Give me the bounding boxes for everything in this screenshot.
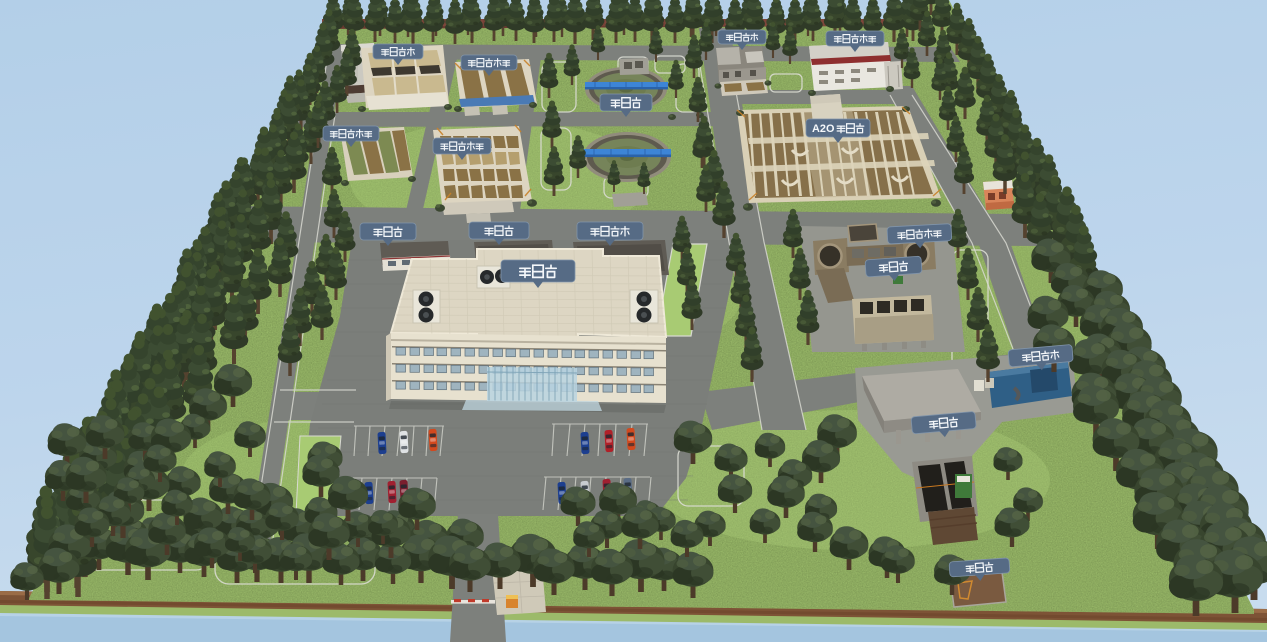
- svg-text:A2O: A2O: [812, 123, 835, 135]
